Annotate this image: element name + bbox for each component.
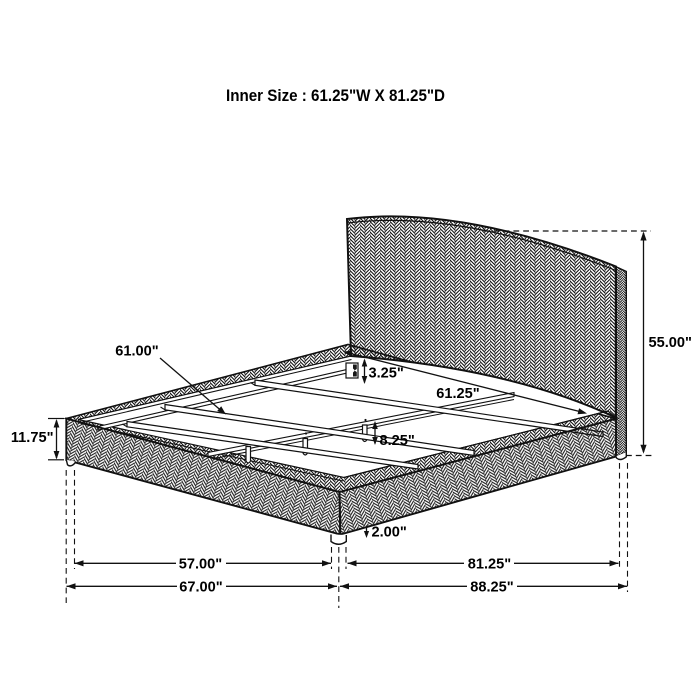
svg-text:67.00": 67.00"	[179, 580, 222, 596]
svg-text:55.00": 55.00"	[649, 335, 692, 351]
svg-text:57.00": 57.00"	[179, 557, 222, 573]
svg-text:8.25": 8.25"	[380, 433, 415, 449]
svg-text:61.00": 61.00"	[115, 344, 158, 360]
svg-text:61.25": 61.25"	[436, 386, 479, 402]
svg-text:3.25": 3.25"	[369, 366, 404, 382]
svg-text:2.00": 2.00"	[372, 525, 407, 541]
svg-text:Inner Size : 61.25"W X 81.25"D: Inner Size : 61.25"W X 81.25"D	[226, 86, 445, 105]
svg-text:81.25": 81.25"	[468, 557, 511, 573]
svg-text:11.75": 11.75"	[11, 430, 54, 446]
svg-text:88.25": 88.25"	[470, 580, 513, 596]
